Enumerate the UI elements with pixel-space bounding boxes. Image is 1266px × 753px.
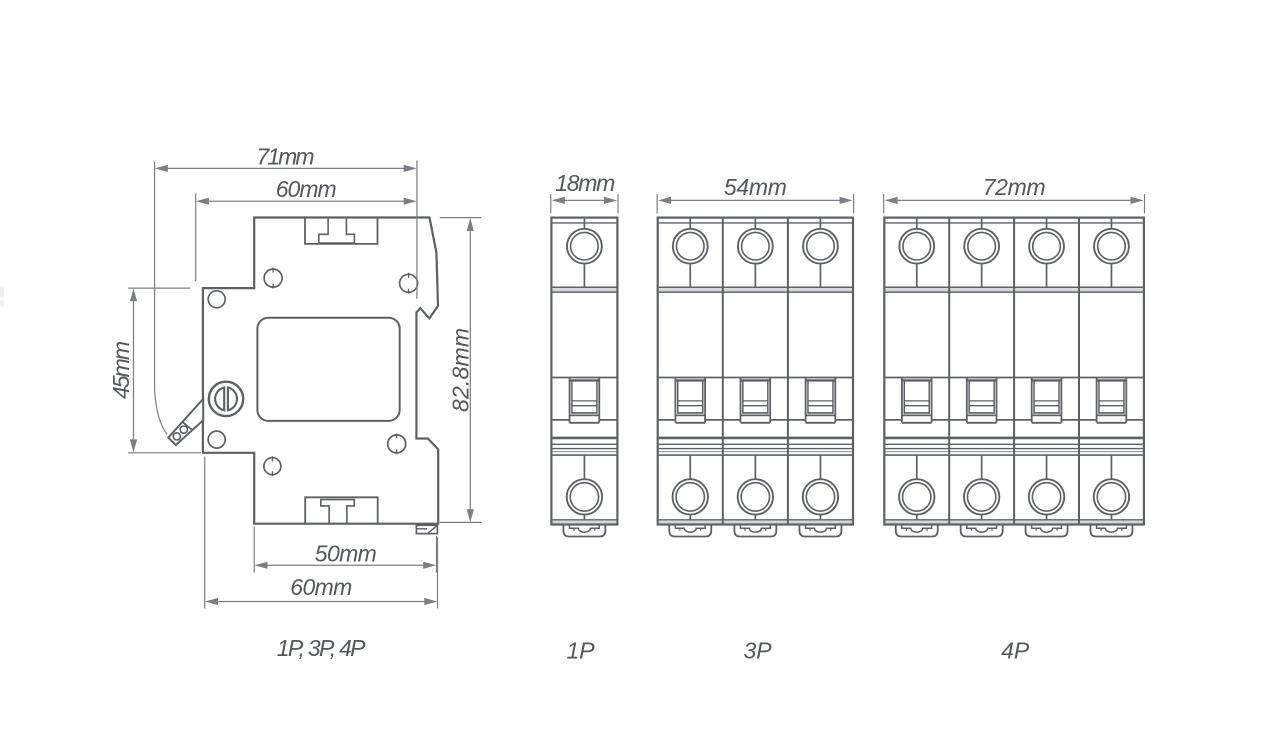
svg-text:1P: 1P [567,638,596,664]
svg-text:72mm: 72mm [983,174,1046,200]
svg-text:45mm: 45mm [108,341,134,399]
svg-text:1P, 3P, 4P: 1P, 3P, 4P [277,635,366,661]
svg-text:54mm: 54mm [724,174,787,200]
svg-text:3P: 3P [744,638,773,664]
svg-text:71mm: 71mm [257,143,315,169]
svg-text:82.8mm: 82.8mm [448,328,474,412]
svg-text:18mm: 18mm [555,170,615,196]
svg-text:4P: 4P [1001,638,1030,664]
svg-text:60mm: 60mm [290,574,352,600]
svg-text:60mm: 60mm [276,176,337,202]
svg-text:50mm: 50mm [315,540,377,566]
